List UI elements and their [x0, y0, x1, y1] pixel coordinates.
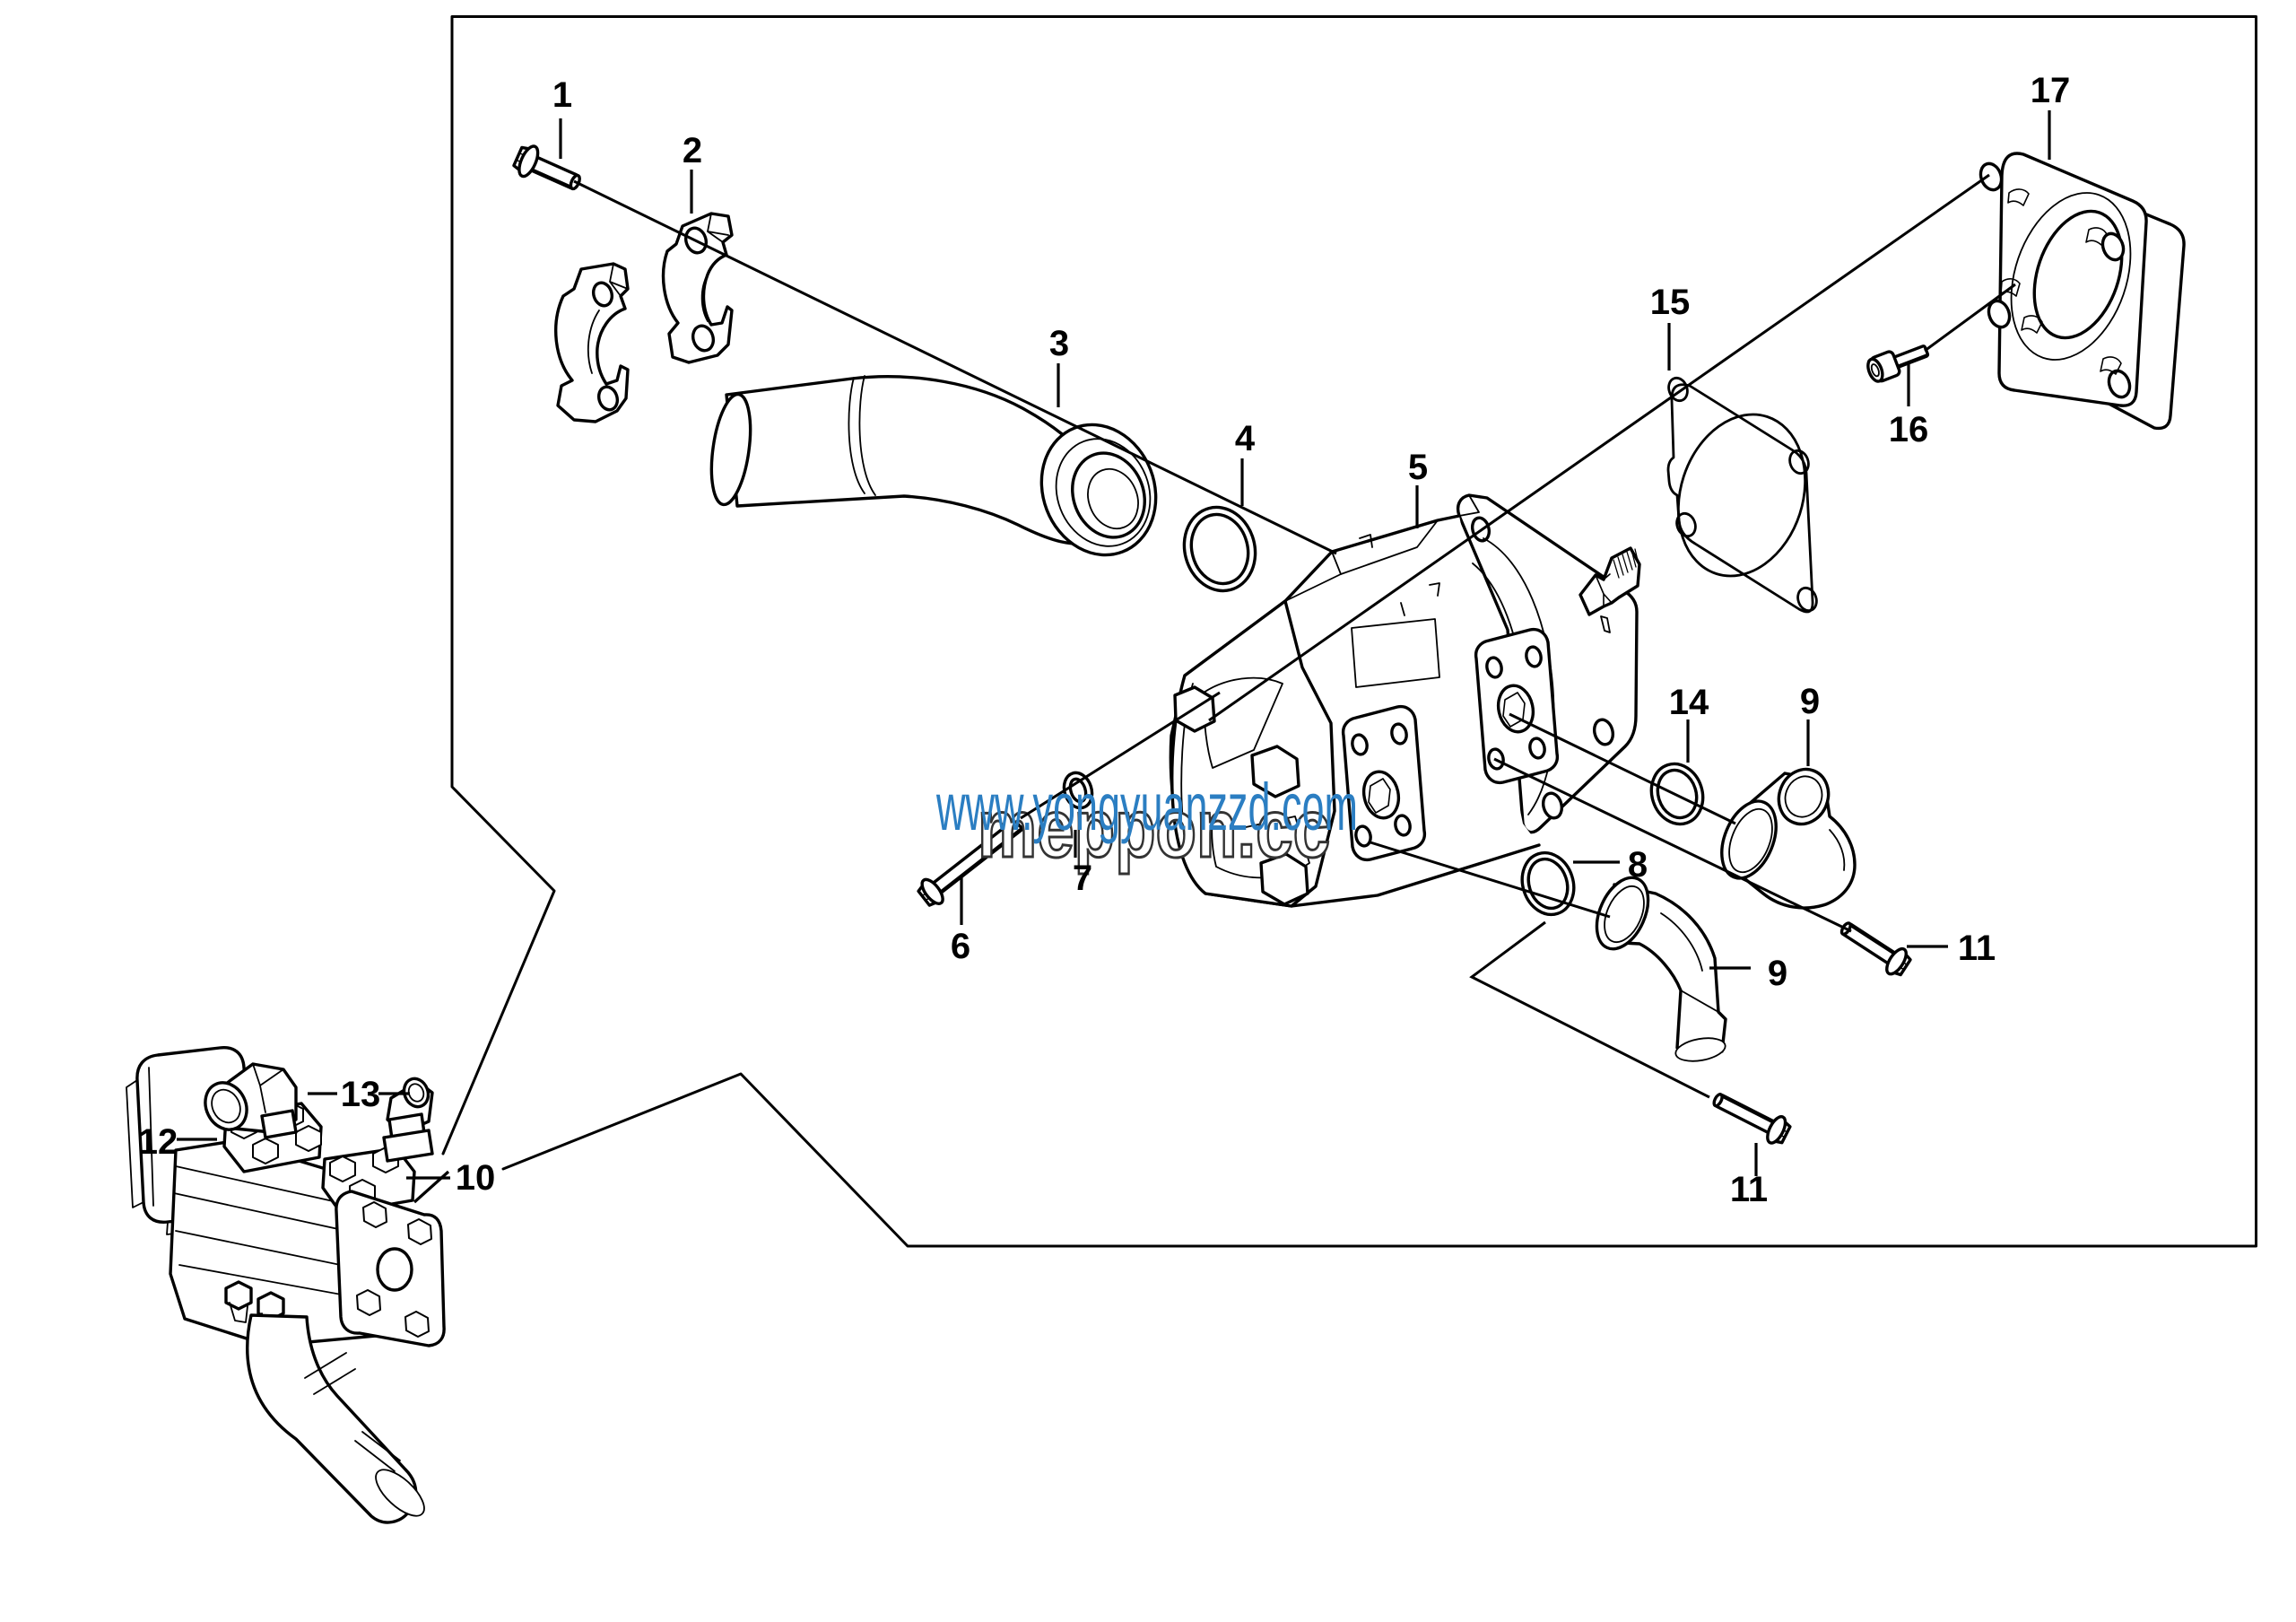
svg-text:16: 16 [1889, 410, 1929, 449]
svg-text:2: 2 [683, 131, 702, 170]
svg-text:13: 13 [341, 1075, 381, 1114]
svg-text:4: 4 [1235, 419, 1256, 458]
svg-text:14: 14 [1669, 683, 1709, 722]
svg-text:11: 11 [1730, 1170, 1768, 1209]
svg-text:6: 6 [951, 927, 970, 966]
svg-text:15: 15 [1650, 283, 1691, 322]
svg-text:8: 8 [1628, 845, 1648, 885]
svg-text:7: 7 [1073, 859, 1092, 898]
svg-text:3: 3 [1049, 324, 1069, 363]
svg-text:17: 17 [2031, 71, 2071, 110]
svg-text:11: 11 [1958, 929, 1996, 968]
svg-text:5: 5 [1408, 448, 1428, 487]
svg-text:www.yongyuanzzd.com: www.yongyuanzzd.com [935, 770, 1358, 844]
svg-text:9: 9 [1768, 954, 1787, 993]
svg-text:10: 10 [456, 1158, 496, 1198]
svg-text:9: 9 [1800, 682, 1820, 721]
svg-text:12: 12 [138, 1122, 178, 1162]
svg-text:1: 1 [552, 75, 572, 115]
